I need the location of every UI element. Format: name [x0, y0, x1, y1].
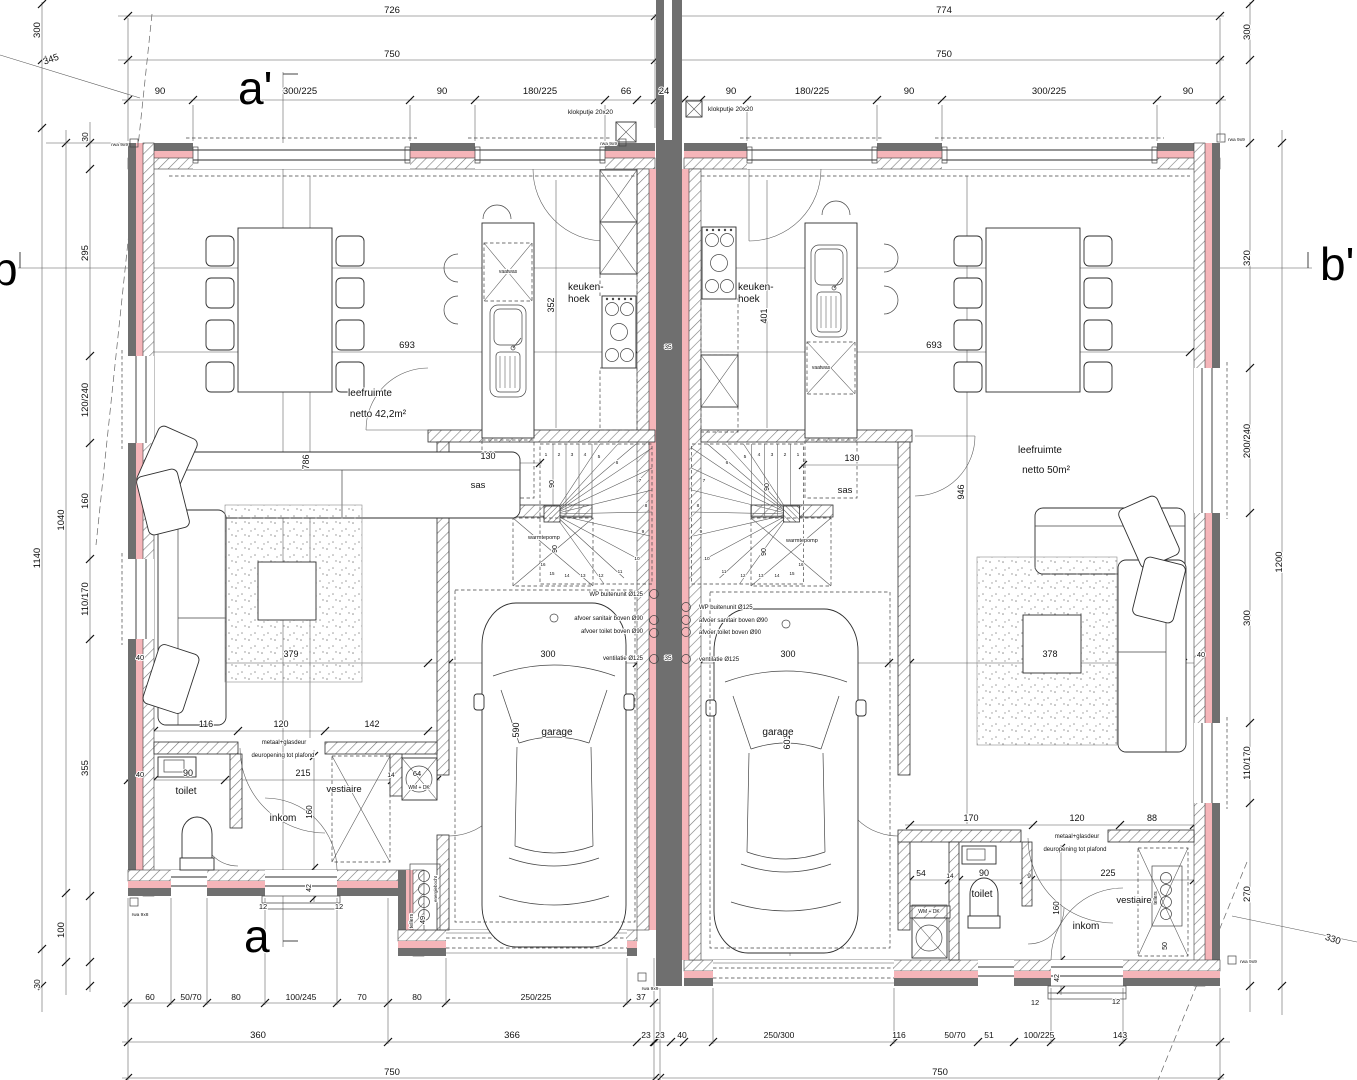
dim-label: 270 [1242, 886, 1253, 902]
dim-label: 90 [726, 86, 737, 97]
dim-label: metaal+glasdeur [1055, 834, 1100, 840]
dim-label: 215 [295, 768, 310, 778]
dim-label: 90 [552, 545, 559, 553]
dim-label: 300 [1242, 610, 1253, 626]
dim-label: 225 [1100, 868, 1115, 878]
stair-tread-number: 13 [580, 573, 586, 578]
room-label-kitchen-right: keuken- [738, 282, 774, 293]
dim-label: 1040 [56, 509, 67, 530]
stair-tread-number: 3 [571, 452, 574, 458]
dim-label: 90 [1183, 86, 1194, 97]
room-label-living-right: leefruimte [1018, 445, 1062, 456]
dim-label: 9 [1027, 873, 1031, 880]
stair-tread-number: 15 [549, 571, 555, 576]
dim-label: 160 [80, 493, 91, 509]
dim-label: 300 [780, 649, 795, 659]
heatpump-label-left: warmtepomp [527, 535, 560, 541]
klokputje-label-right: klokputje 20x20 [708, 106, 754, 113]
dim-label: 693 [399, 340, 415, 351]
dim-label: 90 [764, 483, 771, 491]
dim-label: 23 [641, 1030, 651, 1040]
dim-label: 360 [250, 1030, 266, 1041]
dim-label: 12 [1031, 998, 1039, 1007]
stair-tread-number: 12 [740, 573, 746, 578]
dim-label: 54 [916, 868, 926, 878]
stair-tread-number: 7 [703, 478, 706, 484]
dim-label: 35 [664, 344, 672, 351]
stair-tread-number: 6 [726, 460, 729, 466]
dim-label: 750 [932, 1067, 948, 1078]
room-label-inkom-right: inkom [1073, 921, 1100, 932]
room-area-living-right: netto 50m² [1022, 465, 1070, 476]
dim-label: 160 [305, 805, 314, 819]
stair-tread-number: 15 [789, 571, 795, 576]
dim-label: afvoer toilet boven Ø90 [581, 629, 644, 635]
dim-label: 90 [761, 548, 768, 556]
dim-label: afvoer sanitair boven Ø90 [699, 618, 768, 624]
room-label-garage-left: garage [541, 727, 573, 738]
dim-label: 120/240 [80, 383, 91, 417]
stair-tread-number: 2 [784, 452, 787, 458]
dim-label: 116 [199, 719, 213, 729]
dim-label: 51 [984, 1030, 994, 1040]
dim-label: 70 [357, 992, 367, 1002]
room-label-toilet-left: toilet [175, 786, 196, 797]
dim-label: 693 [926, 340, 942, 351]
section-marker-a-top: a' [238, 62, 272, 114]
dim-label: 300/225 [1032, 86, 1066, 97]
room-label-living-left: leefruimte [348, 388, 392, 399]
dim-label: 100/245 [286, 992, 317, 1002]
klokputje-box-right [686, 101, 702, 117]
annotation-wp-left: WP buitenunit Ø125 [589, 592, 643, 598]
dim-label: 80 [412, 992, 422, 1002]
dim-label: 200/240 [1242, 424, 1253, 458]
stair-tread-number: 10 [634, 556, 640, 562]
dim-label: 300 [32, 22, 43, 38]
dim-label: deuropening tot plafond [251, 753, 314, 759]
dim-label: 35 [664, 655, 672, 662]
rwa-label: rwa 9x9 [111, 142, 128, 148]
section-marker-b-right: b' [1320, 238, 1354, 290]
dim-label: 90 [183, 768, 193, 778]
dim-label: 90 [549, 480, 556, 488]
dishwasher-label-right: vaatwas [812, 365, 831, 371]
dim-label: 50 [1162, 942, 1169, 950]
dim-label: hoek [568, 294, 591, 305]
dim-label: 250/300 [764, 1030, 795, 1040]
stair-tread-number: 16 [540, 562, 546, 567]
dim-label: 250/225 [521, 992, 552, 1002]
dim-label: 12 [335, 902, 343, 911]
floorplan-page: a' a b b' 72677475075090300/22590180/225… [0, 0, 1357, 1080]
dim-label: 352 [546, 297, 556, 312]
dim-label: 90 [437, 86, 448, 97]
floorplan-svg: a' a b b' 72677475075090300/22590180/225… [0, 0, 1357, 1080]
dim-label: 100/225 [1024, 1030, 1055, 1040]
dim-label: metaal+glasdeur [262, 740, 307, 746]
dim-label: 100 [56, 922, 67, 938]
dim-label: 49 [418, 916, 427, 924]
washer-label-left: WM + DK [408, 785, 430, 791]
dim-label: 12 [1112, 997, 1120, 1006]
klokputje-label-left: klokputje 20x20 [568, 109, 614, 116]
dim-label: 160 [1052, 901, 1061, 915]
washer-left [402, 758, 437, 800]
dim-label: 130 [844, 453, 859, 463]
rwa-label: rwa 9x9 [642, 986, 659, 992]
stair-tread-number: 14 [564, 573, 570, 578]
dim-label: 1200 [1274, 551, 1285, 572]
room-label-vestiaire-left: vestiaire [326, 784, 361, 795]
dim-label: 379 [283, 649, 298, 659]
dim-label: 300/225 [283, 86, 317, 97]
stair-tread-number: 1 [797, 452, 800, 458]
stair-tread-number: 5 [744, 454, 747, 460]
stair-tread-number: 13 [758, 573, 764, 578]
dim-label: 116 [892, 1030, 906, 1040]
front-door-left[interactable] [262, 870, 340, 909]
dim-label: 750 [384, 49, 400, 60]
room-label-vestiaire-right: vestiaire [1116, 895, 1151, 906]
dim-label: 170 [963, 813, 978, 823]
washer-label-right: WM + DK [918, 909, 940, 915]
dim-label: 300 [1242, 24, 1253, 40]
window-front-left-50 [171, 870, 207, 896]
dim-label: 726 [384, 5, 400, 16]
annotation-wp-right: WP buitenunit Ø125 [699, 605, 753, 611]
dim-label: 66 [621, 86, 632, 97]
rwa-label: rwa 9x8 [132, 912, 149, 918]
dim-label: 14 [387, 772, 395, 779]
dim-label: 40 [136, 653, 144, 662]
dim-label: 30 [32, 979, 42, 989]
stair-tread-number: 3 [771, 452, 774, 458]
stair-tread-number: 5 [598, 454, 601, 460]
meters-label-right: tellers [1153, 891, 1159, 905]
dim-label: 90 [155, 86, 166, 97]
dim-label: ventilatie Ø125 [603, 656, 644, 662]
garage-door-right[interactable] [713, 960, 894, 986]
dim-label: energiebocht [433, 875, 438, 902]
dim-label: 64 [413, 769, 421, 778]
stair-tread-number: 16 [798, 562, 804, 567]
stair-tread-number: 2 [558, 452, 561, 458]
rwa-label: rwa 9x9 [1240, 959, 1257, 965]
dim-label: 110/170 [80, 582, 91, 616]
section-marker-b-left: b [0, 243, 18, 295]
dim-label: 110/170 [1242, 746, 1253, 780]
dim-label: 90 [979, 868, 989, 878]
dim-label: 142 [364, 719, 379, 729]
dim-label: 120 [273, 719, 288, 729]
room-area-living-left: netto 42,2m² [350, 409, 407, 420]
stair-tread-number: 4 [584, 452, 587, 458]
room-label-toilet-right: toilet [971, 889, 992, 900]
dim-label: 300 [540, 649, 555, 659]
dim-label: 401 [759, 308, 769, 323]
dim-label: 12 [259, 902, 267, 911]
dim-label: 786 [301, 454, 311, 469]
stair-tread-number: 6 [616, 460, 619, 466]
stair-tread-number: 11 [722, 569, 727, 574]
dim-label: ventilatie Ø125 [699, 657, 740, 663]
stair-tread-number: 9 [642, 529, 645, 535]
dim-label: afvoer sanitair boven Ø90 [574, 616, 643, 622]
stair-tread-number: 1 [545, 452, 548, 458]
room-label-inkom-left: inkom [270, 813, 297, 824]
dim-label: 90 [904, 86, 915, 97]
dim-label: 40 [677, 1030, 687, 1040]
dim-label: deuropening tot plafond [1043, 847, 1106, 853]
dim-label: 774 [936, 5, 952, 16]
stair-tread-number: 10 [704, 556, 710, 562]
dishwasher-label-left: vaatwas [499, 269, 518, 275]
dim-label: 320 [1242, 250, 1253, 266]
dim-label: 80 [231, 992, 241, 1002]
rwa-label: rwa 9x9 [600, 141, 617, 147]
dim-label: 60 [145, 992, 155, 1002]
dim-label: 24 [659, 86, 670, 97]
dim-label: 143 [1113, 1030, 1127, 1040]
heatpump-label-right: warmtepomp [785, 538, 818, 544]
dim-label: 50/70 [944, 1030, 966, 1040]
dim-label: 946 [956, 484, 966, 499]
toilet-bowl [182, 817, 212, 858]
dim-label: 1140 [32, 548, 43, 568]
dim-label: 130 [480, 451, 495, 461]
dim-label: 14 [946, 873, 954, 880]
dim-label: 750 [936, 49, 952, 60]
dim-label: 42 [1054, 974, 1061, 982]
coffee-table-left [258, 562, 316, 620]
dim-label: 295 [80, 245, 91, 261]
dim-label: 40 [136, 770, 144, 779]
dim-label: 366 [504, 1030, 520, 1041]
dim-label: 37 [636, 992, 646, 1002]
room-label-kitchen-left: keuken- [568, 282, 604, 293]
coffee-table-right [1023, 615, 1081, 673]
meters-label-left: tellers [409, 913, 415, 928]
stair-tread-number: 8 [645, 503, 648, 509]
stair-tread-number: 4 [758, 452, 761, 458]
room-label-sas-left: sas [471, 480, 486, 491]
dim-label: 50/70 [180, 992, 202, 1002]
dim-label: 40 [1197, 650, 1205, 659]
room-label-garage-right: garage [762, 727, 794, 738]
dim-label: 88 [1147, 813, 1157, 823]
stair-tread-number: 14 [774, 573, 780, 578]
dim-label: 750 [384, 1067, 400, 1078]
stair-tread-number: 12 [598, 573, 604, 578]
dim-label: afvoer toilet boven Ø90 [699, 630, 762, 636]
dim-label: 378 [1042, 649, 1057, 659]
dim-label: 23 [655, 1030, 665, 1040]
room-label-sas-right: sas [838, 485, 853, 496]
rwa-label: rwa 9x9 [1228, 137, 1245, 143]
dim-label: 355 [80, 760, 91, 776]
stair-tread-number: 8 [697, 503, 700, 509]
dim-label: 180/225 [523, 86, 557, 97]
dim-label: hoek [738, 294, 761, 305]
window-front-right-50 [978, 960, 1014, 986]
dim-label: 180/225 [795, 86, 829, 97]
stair-tread-number: 7 [639, 478, 642, 484]
dim-label: 120 [1069, 813, 1084, 823]
section-marker-a-bottom: a [244, 910, 270, 962]
stair-tread-number: 11 [618, 569, 623, 574]
dim-label: 42 [306, 884, 313, 892]
dim-label: 30 [80, 132, 90, 142]
stair-tread-number: 9 [700, 529, 703, 535]
dim-label: 590 [511, 722, 521, 737]
